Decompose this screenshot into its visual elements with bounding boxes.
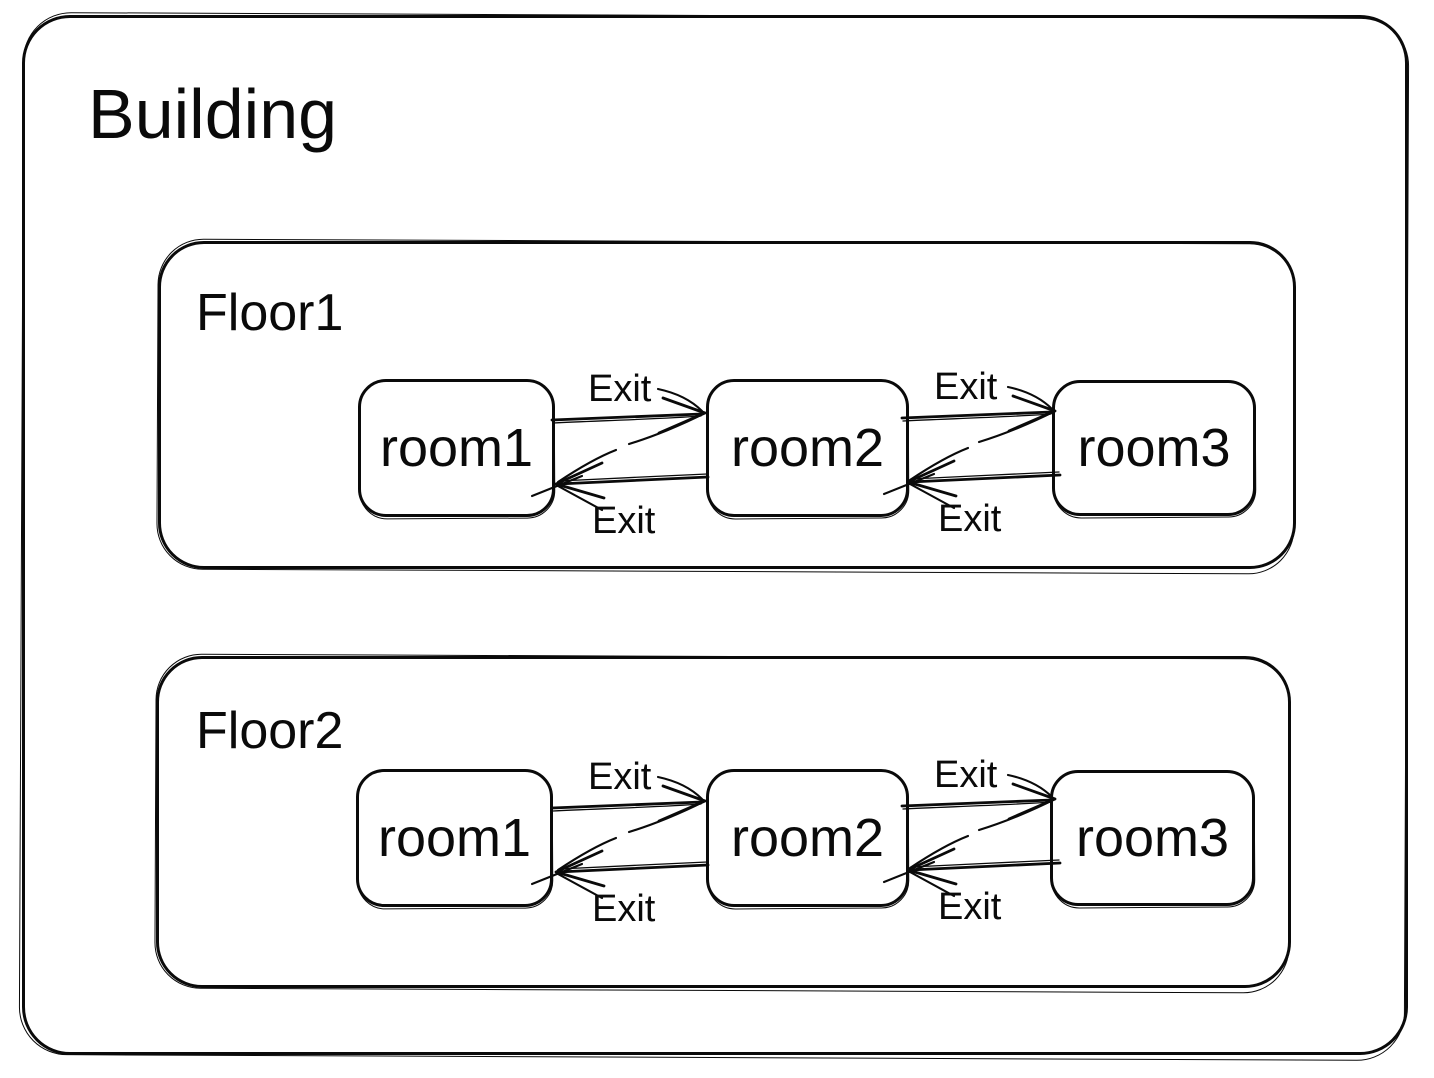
- floor1-room2-label: room2: [731, 417, 884, 479]
- floor2-room1-label: room1: [378, 807, 531, 869]
- floor2-room2-node: room2: [706, 769, 909, 907]
- floor1-room1-node: room1: [358, 379, 555, 517]
- floor1-room3-node: room3: [1052, 380, 1256, 516]
- floor1-label: Floor1: [196, 286, 343, 341]
- building-label: Building: [88, 78, 337, 152]
- floor1-room1-label: room1: [380, 417, 533, 479]
- floor1-transition-label-room1-room2-top: Exit: [588, 370, 651, 410]
- floor2-transition-label-room3-room2-bottom: Exit: [938, 888, 1001, 928]
- floor2-label: Floor2: [196, 704, 343, 759]
- floor2-room1-node: room1: [356, 769, 553, 907]
- floor2-room2-label: room2: [731, 807, 884, 869]
- floor1-transition-label-room2-room3-top: Exit: [934, 368, 997, 408]
- floor2-room3-label: room3: [1076, 807, 1229, 869]
- diagram-canvas: Building Floor1 room1 room2 room3 Floor2…: [0, 0, 1434, 1078]
- floor1-room3-label: room3: [1077, 417, 1230, 479]
- floor2-transition-label-room2-room3-top: Exit: [934, 756, 997, 796]
- floor1-room2-node: room2: [706, 379, 909, 517]
- floor2-room3-node: room3: [1050, 770, 1255, 906]
- floor1-transition-label-room3-room2-bottom: Exit: [938, 500, 1001, 540]
- floor2-transition-label-room2-room1-bottom: Exit: [592, 890, 655, 930]
- floor2-transition-label-room1-room2-top: Exit: [588, 758, 651, 798]
- floor1-transition-label-room2-room1-bottom: Exit: [592, 502, 655, 542]
